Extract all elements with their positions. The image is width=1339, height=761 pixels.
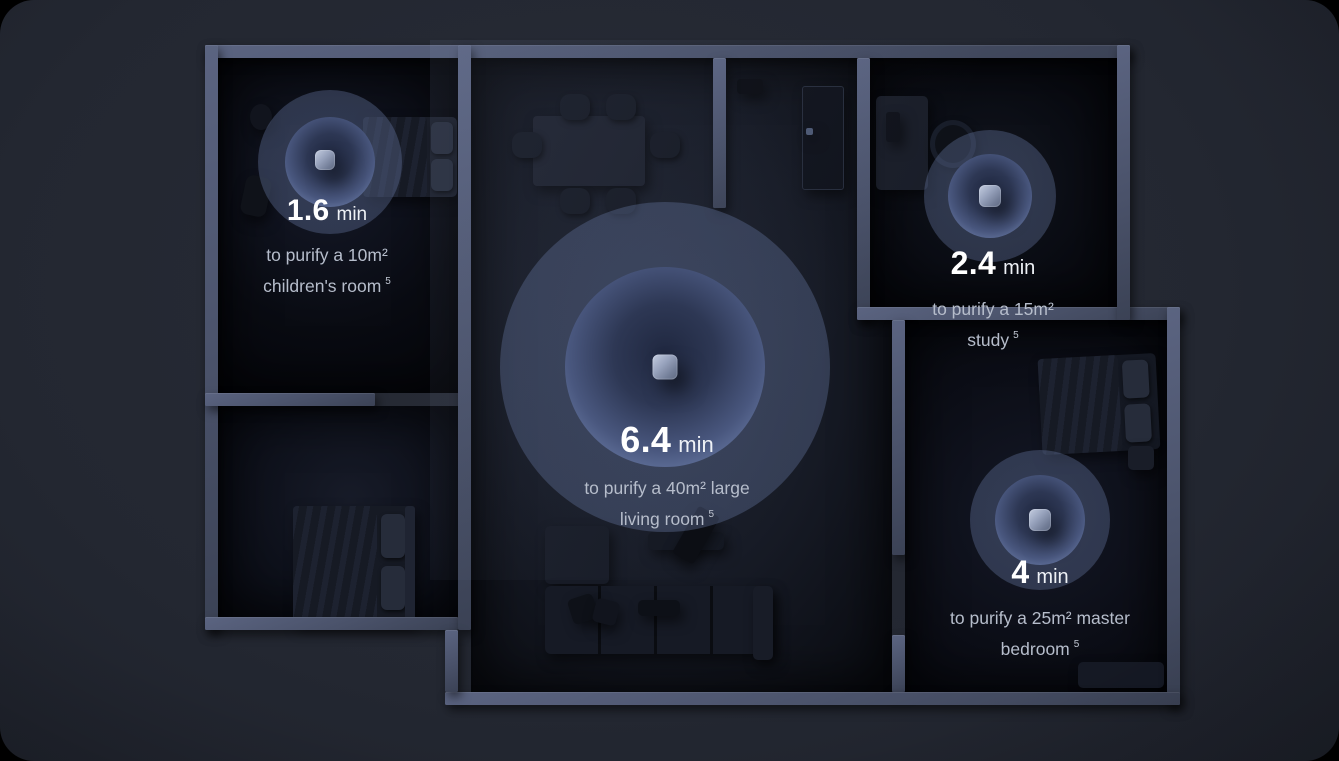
purification-time: 4min	[950, 554, 1130, 591]
purifier-device	[315, 150, 335, 170]
wall-segment	[713, 58, 726, 208]
sofa-pillow	[638, 600, 680, 616]
wall-segment	[892, 320, 905, 555]
living-room-label: 6.4min to purify a 40m² large living roo…	[584, 419, 749, 533]
time-value: 2.4	[951, 245, 996, 281]
time-value: 6.4	[620, 419, 671, 460]
wall-segment	[892, 635, 905, 692]
purifier-device	[653, 355, 678, 380]
sofa-arm	[753, 586, 773, 660]
time-unit: min	[1003, 257, 1035, 279]
dining-chair	[560, 94, 590, 120]
headboard	[405, 506, 415, 624]
master-bedroom-label: 4min to purify a 25m² master bedroom5	[950, 554, 1130, 663]
blanket	[293, 506, 377, 624]
wall-segment	[205, 617, 458, 630]
study-label: 2.4min to purify a 15m² study5	[932, 245, 1054, 354]
desc-line-1: to purify a 10m²	[263, 241, 391, 269]
desc-line-2: children's room5	[263, 269, 391, 300]
pillow	[381, 514, 405, 558]
teddy-bear	[250, 104, 272, 130]
time-unit: min	[336, 204, 367, 225]
desc-line-1: to purify a 40m² large	[584, 474, 749, 502]
entry-door	[802, 86, 844, 190]
dresser	[1078, 662, 1164, 688]
wall-segment	[1117, 45, 1130, 320]
blanket	[363, 117, 427, 197]
master-bed	[1038, 353, 1161, 455]
wall-segment	[205, 45, 1130, 58]
purification-time: 1.6min	[263, 194, 391, 228]
wall-segment	[445, 630, 458, 692]
footnote-marker: 5	[709, 509, 715, 520]
time-unit: min	[1036, 566, 1068, 588]
purifier-device	[979, 185, 1001, 207]
second-bedroom-bed	[293, 506, 415, 624]
desc-line-1: to purify a 15m²	[932, 295, 1054, 323]
pillow	[381, 566, 405, 610]
dining-chair	[606, 94, 636, 120]
dining-chair	[650, 132, 680, 158]
dining-table	[533, 116, 645, 186]
blanket	[1038, 355, 1123, 455]
footnote-marker: 5	[385, 276, 391, 287]
room-name: bedroom	[1001, 639, 1070, 659]
sofa-ottoman	[545, 526, 609, 584]
door-handle	[806, 128, 813, 135]
purification-time: 2.4min	[932, 245, 1054, 282]
footnote-marker: 5	[1013, 330, 1019, 341]
desc-line-2: living room5	[584, 502, 749, 533]
room-name: living room	[620, 509, 705, 529]
room-description: to purify a 25m² master bedroom5	[950, 604, 1130, 663]
children-room-label: 1.6min to purify a 10m² children's room5	[263, 194, 391, 300]
time-value: 4	[1011, 554, 1029, 590]
wall-segment	[445, 692, 1180, 705]
room-description: to purify a 10m² children's room5	[263, 241, 391, 300]
wall-segment	[205, 393, 375, 406]
wall-segment	[1167, 307, 1180, 705]
pillow	[431, 122, 453, 154]
desk-monitor	[886, 112, 900, 142]
purification-time: 6.4min	[584, 419, 749, 461]
study-chair	[930, 120, 976, 168]
room-name: study	[967, 330, 1009, 350]
time-unit: min	[678, 432, 713, 457]
dining-chair	[560, 188, 590, 214]
pillow	[431, 159, 453, 191]
footnote-marker: 5	[1074, 639, 1080, 650]
dining-chair	[512, 132, 542, 158]
desc-line-1: to purify a 25m² master	[950, 604, 1130, 632]
children-bed	[363, 117, 457, 197]
room-description: to purify a 40m² large living room5	[584, 474, 749, 533]
desc-line-2: bedroom5	[950, 632, 1130, 663]
room-name: children's room	[263, 276, 381, 296]
wall-segment	[458, 45, 471, 630]
wall-segment	[205, 45, 218, 630]
dining-chair	[606, 188, 636, 214]
desc-line-2: study5	[932, 323, 1054, 354]
product-scene-card: 1.6min to purify a 10m² children's room5…	[0, 0, 1339, 761]
room-description: to purify a 15m² study5	[932, 295, 1054, 354]
pillow	[1122, 359, 1150, 398]
study-desk	[876, 96, 928, 190]
wall-segment	[857, 58, 870, 320]
pillow	[1124, 403, 1152, 442]
shoe-mat	[737, 79, 763, 94]
nightstand	[1128, 446, 1154, 470]
time-value: 1.6	[287, 194, 330, 227]
purifier-device	[1029, 509, 1051, 531]
